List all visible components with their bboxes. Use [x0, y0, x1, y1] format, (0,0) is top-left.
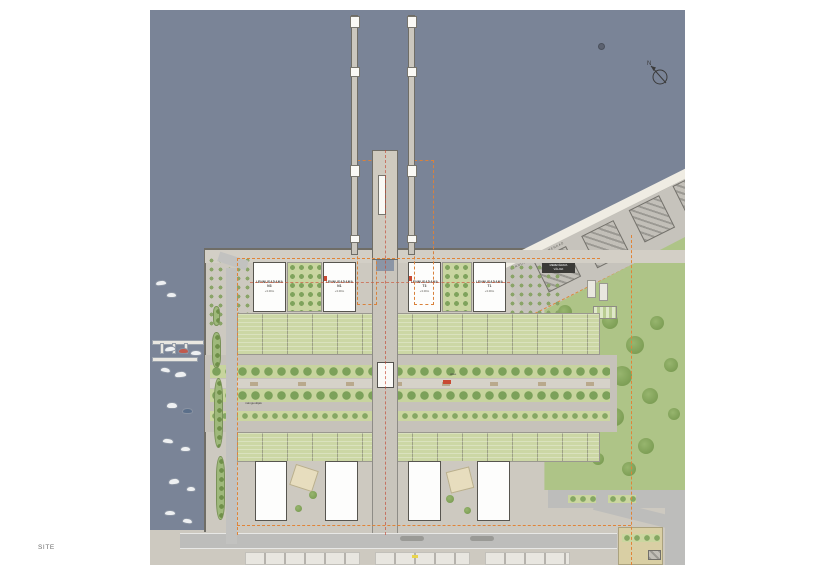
- north-letter: N: [647, 61, 651, 67]
- building-lennusadama-n3: LENNUSADAMA N3 +3.00m: [253, 262, 286, 312]
- marina-dock: [152, 357, 198, 362]
- sheet-title: SITE: [38, 544, 55, 551]
- courtyard-tree: [464, 507, 471, 514]
- site-boundary-west: [237, 258, 238, 535]
- courtyard-garden: [442, 262, 472, 312]
- small-hatched-structure: [648, 550, 661, 560]
- building-level: +3.00m: [485, 289, 494, 293]
- boat: [180, 446, 191, 452]
- pier-platform: [407, 16, 417, 28]
- red-survey-marker: [324, 276, 327, 281]
- boat: [186, 486, 196, 492]
- east-breakwater-pier: [408, 15, 415, 255]
- boat: [174, 370, 188, 378]
- building-level: +3.00m: [265, 289, 274, 293]
- terraced-garden-band: [237, 313, 600, 355]
- boat: [155, 279, 168, 286]
- central-axis-line: [385, 150, 386, 535]
- courtyard: [287, 461, 325, 521]
- pier-platform: [407, 165, 417, 177]
- courtyard-tree: [446, 495, 454, 503]
- courtyard-garden: [287, 262, 322, 312]
- pier-platform: [407, 235, 417, 243]
- red-median-marker: [443, 380, 451, 384]
- boat: [190, 350, 202, 356]
- green-island: [212, 332, 221, 368]
- courtyard-tree: [295, 505, 302, 512]
- site-boundary-east: [631, 235, 632, 565]
- green-island: [214, 378, 223, 448]
- red-survey-marker: [409, 276, 412, 281]
- lot-trees: [622, 534, 660, 542]
- courtyard-tree: [309, 491, 317, 499]
- building-lennusadama-n1: LENNUSADAMA N1 +3.00m: [323, 262, 356, 312]
- parking-green-strip: [568, 495, 596, 503]
- allee-median: [210, 379, 610, 388]
- east-vertical-road: [665, 500, 685, 565]
- existing-context-building: [375, 552, 470, 565]
- terraced-garden-band: [237, 432, 600, 462]
- park-tree: [622, 462, 636, 476]
- park-tree: [668, 408, 680, 420]
- site-boundary-south: [237, 525, 631, 526]
- boat: [166, 292, 177, 298]
- park-tree: [650, 316, 664, 330]
- section-line: [250, 282, 510, 283]
- building-level: +3.00m: [335, 289, 344, 293]
- boat-blue: [182, 408, 193, 414]
- pier-platform: [350, 16, 360, 28]
- boat: [168, 477, 181, 485]
- existing-context-building: [245, 552, 360, 565]
- building-south-3: [408, 461, 441, 521]
- sports-court: [587, 280, 596, 298]
- sand-playground: [289, 464, 319, 492]
- site-plan-sheet: LENNUSADAMA PROMENAAD MEREVÄRAVA VÄLJAK: [0, 0, 830, 576]
- boat: [182, 517, 194, 524]
- boat: [162, 437, 175, 444]
- traffic-island: [400, 536, 424, 541]
- green-island: [213, 306, 220, 326]
- yellow-roof-detail: [412, 555, 418, 558]
- boat: [160, 366, 172, 374]
- north-arrow: N: [646, 58, 672, 88]
- building-south-1: [255, 461, 287, 521]
- site-boundary-north: [237, 258, 600, 259]
- boat-red: [178, 348, 189, 354]
- playground-label: mänguväljak: [245, 402, 262, 405]
- building-south-4: [477, 461, 510, 521]
- allee-label: allee: [450, 373, 456, 376]
- boat: [166, 402, 178, 409]
- green-island: [216, 456, 225, 520]
- allee-bush-row: [210, 411, 610, 421]
- park-tree: [626, 336, 644, 354]
- pier-platform: [407, 67, 417, 77]
- traffic-island: [470, 536, 494, 541]
- park-tree: [642, 388, 658, 404]
- sand-playground: [446, 466, 475, 493]
- plaza-label-line2: VÄLJAK: [554, 268, 564, 271]
- median-furniture: [210, 382, 610, 386]
- sports-court: [599, 283, 608, 301]
- pier-platform: [350, 67, 360, 77]
- water-area-boundary: [414, 160, 434, 305]
- existing-context-building: [485, 552, 570, 565]
- building-lennusadama-t1: LENNUSADAMA T1 +3.00m: [473, 262, 506, 312]
- park-tree: [664, 358, 678, 372]
- buoy-marker: [598, 43, 605, 50]
- west-street: [226, 268, 237, 544]
- south-street: [180, 533, 617, 549]
- allee-tree-row-north: [210, 365, 610, 378]
- west-breakwater-pier: [351, 15, 358, 255]
- site-plan-drawing: LENNUSADAMA PROMENAAD MEREVÄRAVA VÄLJAK: [150, 10, 685, 565]
- boat: [164, 510, 176, 516]
- plaza-label-box: MEREVÄRAVA VÄLJAK: [542, 262, 575, 273]
- park-tree: [638, 438, 654, 454]
- courtyard: [440, 461, 477, 521]
- pier-platform: [350, 235, 360, 243]
- allee-tree-row-south: [210, 389, 610, 402]
- pier-platform: [350, 165, 360, 177]
- building-south-2: [325, 461, 358, 521]
